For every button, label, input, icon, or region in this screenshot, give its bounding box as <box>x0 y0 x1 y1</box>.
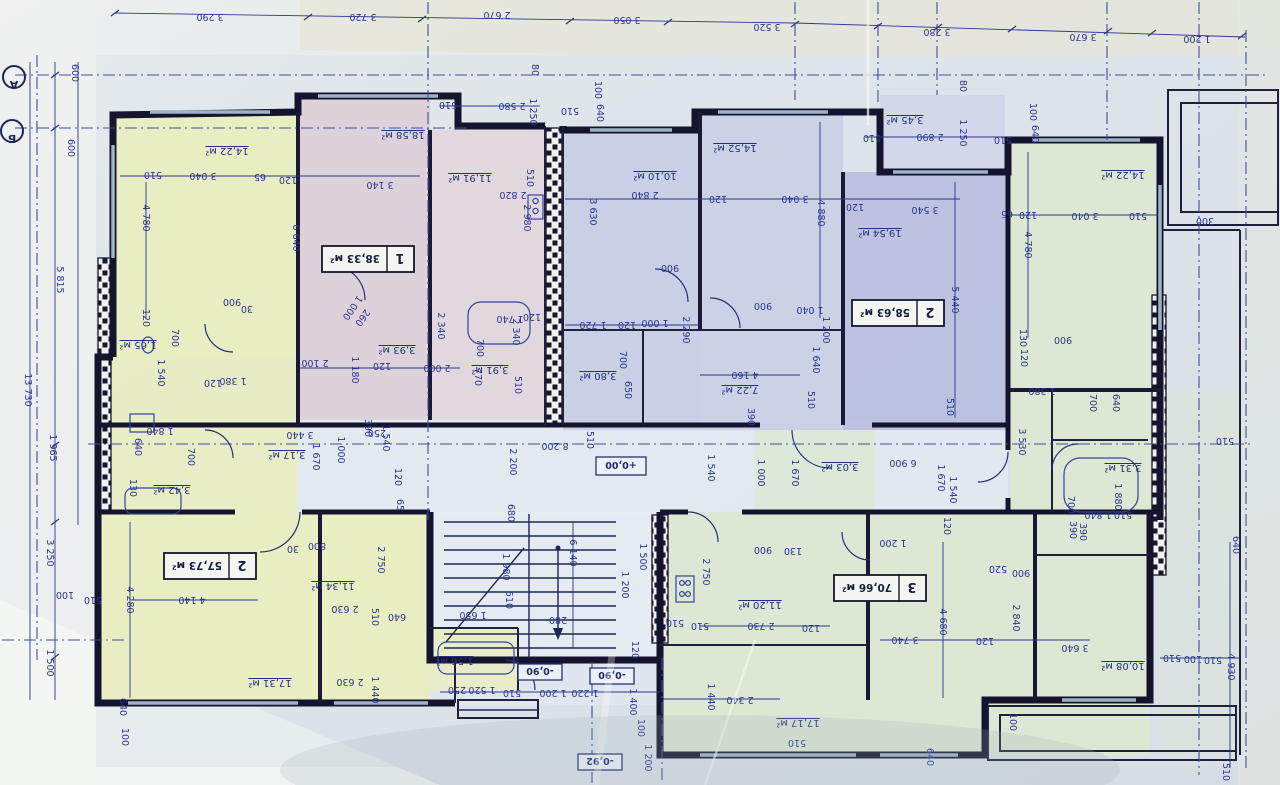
dim-label: 510 <box>944 398 955 416</box>
dim-label: 3 280 <box>923 26 950 37</box>
elevation-mark-0: +0,00 <box>596 457 646 475</box>
dim-label: 300 <box>1196 215 1214 226</box>
dim-label: 1 540 <box>947 476 958 503</box>
dim-label: 3 670 <box>1069 31 1096 42</box>
room-area-label: 14,22 м² <box>1101 169 1144 180</box>
apartment-area: 58,63 м² <box>860 306 910 318</box>
dim-label: 3 520 <box>753 21 780 32</box>
apartment-label-4: 3 70,66 м² <box>834 575 926 601</box>
dim-label: 2 750 <box>700 558 711 585</box>
dim-label: 1 220 <box>571 687 598 698</box>
dim-label: 1 520 <box>468 684 495 695</box>
dim-label: 120 <box>976 635 994 646</box>
dim-label: 650 <box>622 381 633 399</box>
dim-label: 4 680 <box>937 608 948 635</box>
dim-label: 900 <box>754 300 772 311</box>
dim-label: 390 <box>745 408 756 426</box>
dim-label: 3 640 <box>1061 642 1088 653</box>
dim-label: 100 <box>1184 653 1202 664</box>
dim-label: 510 <box>503 687 521 698</box>
dim-label: 1 440 <box>705 683 716 710</box>
dim-label: 3 140 <box>366 179 393 190</box>
dim-label: 100 <box>1007 713 1018 731</box>
dim-label: 2 750 <box>375 546 386 573</box>
dim-label: 1 000 <box>641 317 668 328</box>
dim-label: 700 <box>1065 496 1076 514</box>
dim-label: 800 <box>308 540 326 551</box>
dim-label: 510 <box>994 134 1012 145</box>
dim-label: 1 200 <box>619 571 630 598</box>
dim-label: 4 880 <box>815 199 826 226</box>
dim-label: 120 <box>629 641 640 659</box>
grid-axis-label: А <box>9 78 18 91</box>
dim-label: 120 <box>846 201 864 212</box>
dim-label: 1 380 <box>219 375 246 386</box>
dim-label: 900 <box>1054 334 1072 345</box>
dim-label: 130 <box>1017 329 1028 347</box>
dim-label: 640 <box>1110 394 1121 412</box>
dim-label: 13 730 <box>22 373 33 406</box>
dim-label: 700 <box>617 351 628 369</box>
dim-label: 1 040 <box>796 304 823 315</box>
dim-label: 1 500 <box>637 543 648 570</box>
dim-label: 1 670 <box>789 459 800 486</box>
dim-label: 6 640 <box>290 224 301 251</box>
dim-label: 100 <box>1027 103 1038 121</box>
dim-label: 510 <box>503 591 514 609</box>
dim-label: 510 <box>512 376 523 394</box>
dim-label: 510 <box>1163 652 1181 663</box>
dim-label: 1 640 <box>810 346 821 373</box>
dim-label: 1 670 <box>310 443 321 470</box>
dim-label: 4 280 <box>124 586 135 613</box>
dim-label: 640 <box>388 611 406 622</box>
floor-plan-drawing: А Б 3 290 3 720 2 670 3 050 3 520 3 280 … <box>0 0 1280 785</box>
dim-label: 1 650 <box>459 609 486 620</box>
dim-label: 5 815 <box>54 266 65 293</box>
room-area-label: 3,45 м² <box>887 114 924 125</box>
dim-label: 120 <box>279 174 297 185</box>
dim-label: 510 <box>1129 210 1147 221</box>
dim-label: 2 890 <box>916 131 943 142</box>
dim-label: 640 <box>132 438 143 456</box>
room-area-label: 3,91 м² <box>472 364 509 375</box>
dim-label: 6 900 <box>889 457 916 468</box>
dim-label: 80 <box>957 80 968 92</box>
room-area-label: 19,54 м² <box>858 227 901 238</box>
apartment-label-2: 2 58,63 м² <box>852 300 944 326</box>
dim-label: 510 <box>524 169 535 187</box>
dim-label: 1 840 <box>146 425 173 436</box>
dim-label: 2 290 <box>680 316 691 343</box>
dim-label: 640 <box>594 104 605 122</box>
dim-label: 510 <box>369 608 380 626</box>
dim-label: 2 340 <box>510 318 521 345</box>
dim-label: 1 200 <box>820 316 831 343</box>
dim-label: 1 380 <box>1028 385 1055 396</box>
dim-label: 520 <box>989 563 1007 574</box>
dim-label: 510 <box>863 132 881 143</box>
dim-label: 80 <box>529 64 540 76</box>
dim-label: 1 180 <box>349 356 360 383</box>
apartment-number: 2 <box>237 557 246 572</box>
dim-label: 2 820 <box>499 189 526 200</box>
grid-axis-label: Б <box>8 132 16 145</box>
apartment-number: 2 <box>925 304 934 319</box>
dim-label: 2 840 <box>1010 604 1021 631</box>
floorplan-photo: А Б 3 290 3 720 2 670 3 050 3 520 3 280 … <box>0 0 1280 785</box>
room-area-label: 1,65 м² <box>120 339 157 350</box>
apartment-area: 57,73 м² <box>172 559 222 571</box>
dim-label: 1 400 <box>627 688 638 715</box>
room-area-label: 1,56 м² <box>437 655 474 666</box>
dim-label: 2 200 <box>507 448 518 475</box>
room-area-label: 3,31 м² <box>1105 462 1142 473</box>
apartment-number: 1 <box>395 250 404 265</box>
dim-label: 3 530 <box>1016 428 1027 455</box>
dim-label: 65 <box>394 499 405 511</box>
dim-label: 390 <box>1067 521 1078 539</box>
dim-label: 900 <box>223 296 241 307</box>
dim-label: 120 <box>1019 209 1037 220</box>
dim-label: 1 440 <box>369 676 380 703</box>
dim-label: 510 <box>439 99 457 110</box>
dim-label: 250 <box>368 427 386 438</box>
dim-label: 2 980 <box>521 204 532 231</box>
dim-label: 1 200 <box>879 537 906 548</box>
dim-label: 2 670 <box>483 9 510 20</box>
dim-label: 1 250 <box>957 119 968 146</box>
dim-label: 30 <box>241 303 253 314</box>
room-area-label: 10,10 м² <box>633 170 676 181</box>
apartment-area: 38,33 м² <box>330 252 380 264</box>
dim-label: 1 965 <box>47 434 58 461</box>
dim-label: 120 <box>709 193 727 204</box>
dim-label: 1 000 <box>755 459 766 486</box>
dim-label: 640 <box>1230 536 1241 554</box>
dim-label: 100 <box>119 728 130 746</box>
room-area-label: 3,03 м² <box>822 461 859 472</box>
dim-label: 1 540 <box>155 359 166 386</box>
room-area-label: 18,58 м² <box>381 129 424 140</box>
dim-label: 1 200 <box>539 687 566 698</box>
dim-label: 2 340 <box>726 694 753 705</box>
apartment-area: 70,66 м² <box>842 581 892 593</box>
dim-label: 120 <box>392 468 403 486</box>
dim-label: 3 290 <box>196 11 223 22</box>
dim-label: 1 200 <box>1183 33 1210 44</box>
dim-label: 4 780 <box>1022 231 1033 258</box>
dim-label: 510 <box>666 617 684 628</box>
dim-label: 3 740 <box>891 634 918 645</box>
dim-label: 3 630 <box>587 198 598 225</box>
dim-label: 510 <box>1216 435 1234 446</box>
dim-label: 120 <box>941 517 952 535</box>
dim-label: 510 <box>561 105 579 116</box>
dim-label: 900 <box>1012 567 1030 578</box>
dim-label: 1 720 <box>579 319 606 330</box>
dim-label: 120 <box>802 622 820 633</box>
dim-label: 1 840 <box>1084 509 1111 520</box>
dim-label: 2 000 <box>423 362 450 373</box>
dim-label: 700 <box>185 448 196 466</box>
room-area-label: 3,93 м² <box>379 344 416 355</box>
dim-label: 3 720 <box>349 11 376 22</box>
room-area-label: 11,20 м² <box>738 599 781 610</box>
dim-label: 280 <box>549 614 567 625</box>
dim-label: 120 <box>373 360 391 371</box>
elevation-value: +0,00 <box>605 459 637 470</box>
dim-label: 900 <box>754 544 772 555</box>
dim-label: 3 040 <box>781 193 808 204</box>
dim-label: 640 <box>1029 125 1040 143</box>
dim-label: 510 <box>1204 654 1222 665</box>
dim-label: 1 880 <box>1112 483 1123 510</box>
dim-label: 510 <box>84 594 102 605</box>
dim-label: 4 160 <box>731 369 758 380</box>
elevation-value: -0,90 <box>526 665 554 676</box>
dim-label: 510 <box>1114 509 1132 520</box>
dim-label: 250 <box>448 684 466 695</box>
dim-label: 4 930 <box>1225 653 1236 680</box>
room-area-label: 3,17 м² <box>269 449 306 460</box>
room-area-label: 7,22 м² <box>722 384 759 395</box>
dim-label: 5 440 <box>949 286 960 313</box>
dim-label: 3 250 <box>44 539 55 566</box>
dim-label: 120 <box>140 309 151 327</box>
dim-label: 2 730 <box>747 620 774 631</box>
dim-label: 120 <box>1018 349 1029 367</box>
dim-label: 4 780 <box>140 204 151 231</box>
dim-label: 4 140 <box>178 594 205 605</box>
dim-label: 2 630 <box>336 676 363 687</box>
dim-label: 700 <box>1087 394 1098 412</box>
dim-label: 700 <box>169 329 180 347</box>
apartment-number: 3 <box>907 579 916 594</box>
apartment-label-1: 1 38,33 м² <box>322 246 414 272</box>
dim-label: 510 <box>805 391 816 409</box>
room-area-label: 17,31 м² <box>248 677 291 688</box>
dim-label: 100 <box>592 81 603 99</box>
dim-label: 900 <box>661 262 679 273</box>
dim-label: 640 <box>117 698 128 716</box>
dim-label: 2 630 <box>331 603 358 614</box>
dim-label: 1 540 <box>705 454 716 481</box>
dim-label: 1 670 <box>935 464 946 491</box>
dim-label: 1 500 <box>44 649 55 676</box>
dim-label: 510 <box>1220 763 1231 781</box>
dim-label: 3 050 <box>613 14 640 25</box>
dim-label: 2 340 <box>435 312 446 339</box>
dim-label: 65 <box>254 171 266 182</box>
dim-label: 120 <box>523 311 541 322</box>
dim-label: 510 <box>691 620 709 631</box>
dim-label: 130 <box>127 479 138 497</box>
dim-label: 2 840 <box>631 189 658 200</box>
dim-label: 510 <box>584 431 595 449</box>
dim-label: 100 <box>56 589 74 600</box>
dim-label: 510 <box>144 169 162 180</box>
dim-label: 3 040 <box>1071 210 1098 221</box>
dim-label: 130 <box>784 545 802 556</box>
dim-label: 1 980 <box>500 553 511 580</box>
dim-label: 6 140 <box>567 539 578 566</box>
elevation-mark-1: -0,90 <box>518 664 562 680</box>
dim-label: 700 <box>474 339 485 357</box>
room-area-label: 11,91 м² <box>448 172 491 183</box>
dim-label: 120 <box>204 377 222 388</box>
dim-label: 1 250 <box>527 98 538 125</box>
dim-label: 3 440 <box>286 429 313 440</box>
apartment-label-3: 2 57,73 м² <box>164 553 256 579</box>
dim-label: 2 580 <box>498 100 525 111</box>
dim-label: 120 <box>618 319 636 330</box>
room-area-label: 11,34 м² <box>311 580 354 591</box>
room-area-label: 3,42 м² <box>154 484 191 495</box>
room-area-label: 10,08 м² <box>1101 660 1144 671</box>
dim-label: 680 <box>505 504 516 522</box>
dim-label: 600 <box>65 139 76 157</box>
dim-label: 1 000 <box>335 436 346 463</box>
dim-label: 65 <box>1001 208 1013 219</box>
room-area-label: 14,22 м² <box>205 145 248 156</box>
dim-label: 2 100 <box>301 357 328 368</box>
dim-label: 30 <box>287 543 299 554</box>
room-area-label: 3,80 м² <box>580 370 617 381</box>
dim-label: 600 <box>69 64 80 82</box>
dim-label: 8 200 <box>541 440 568 451</box>
room-area-label: 14,52 м² <box>713 142 756 153</box>
dim-label: 3 040 <box>189 170 216 181</box>
dim-label: 3 540 <box>911 204 938 215</box>
